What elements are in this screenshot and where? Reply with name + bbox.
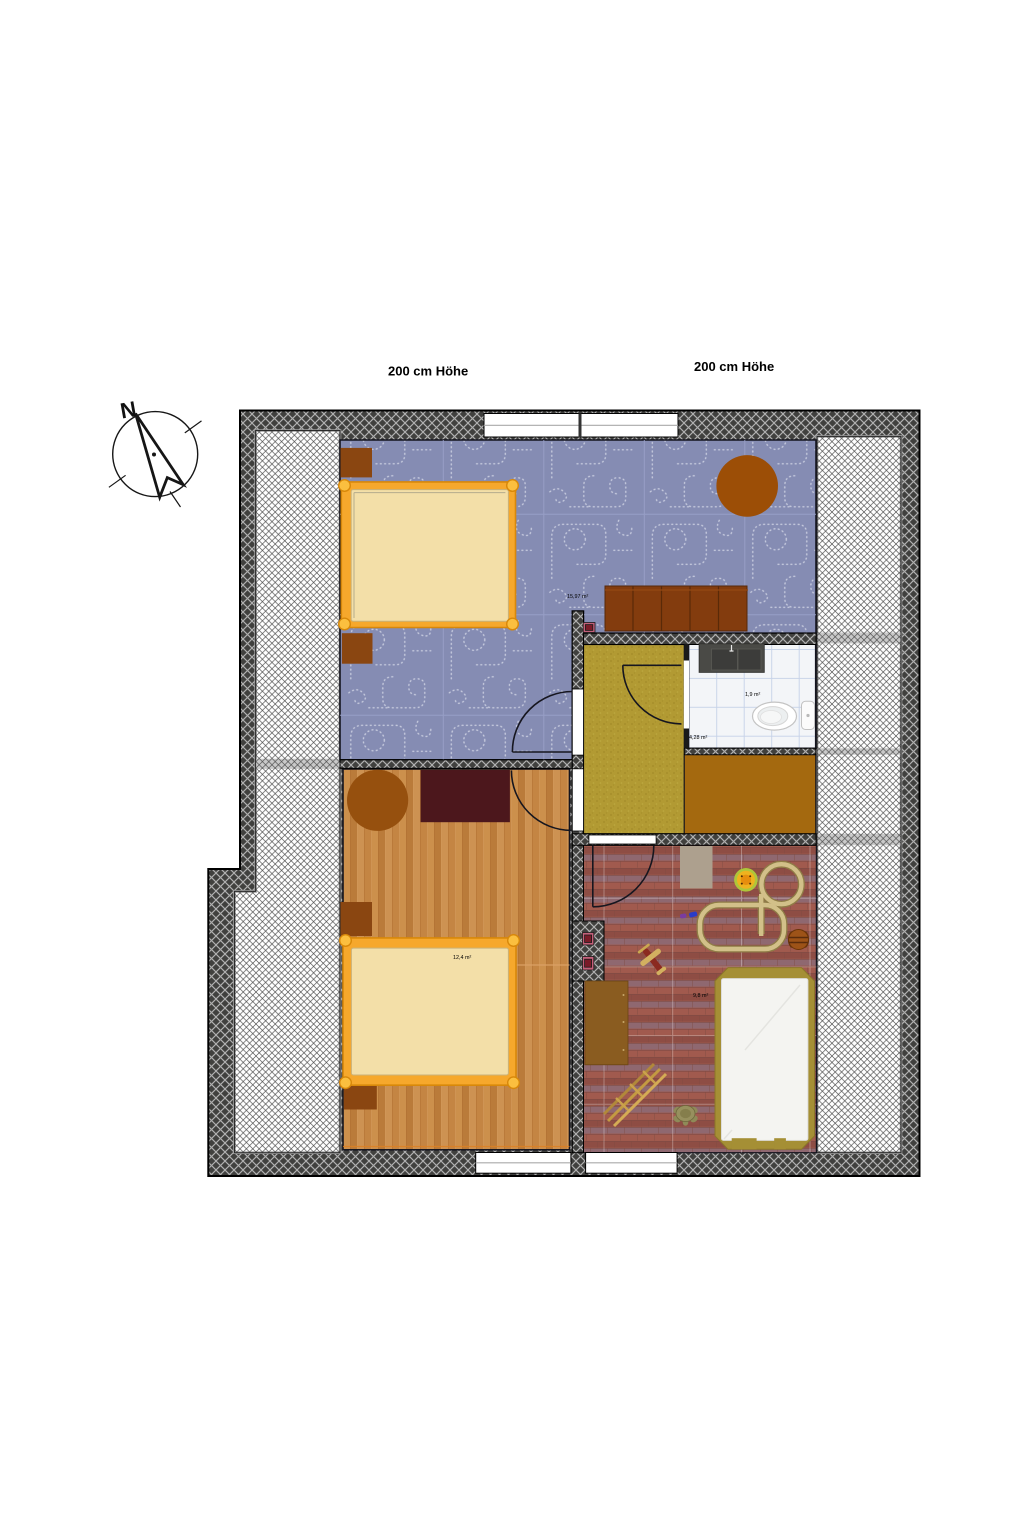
svg-text:12,4 m²: 12,4 m² <box>453 955 471 961</box>
svg-text:200 cm Höhe: 200 cm Höhe <box>388 364 468 379</box>
svg-text:4,28 m²: 4,28 m² <box>689 735 707 741</box>
svg-text:N: N <box>118 396 138 423</box>
svg-text:200 cm Höhe: 200 cm Höhe <box>694 359 774 374</box>
svg-text:1,9 m²: 1,9 m² <box>745 692 760 698</box>
svg-text:15,97 m²: 15,97 m² <box>567 594 588 600</box>
svg-text:9,8 m²: 9,8 m² <box>693 993 708 999</box>
